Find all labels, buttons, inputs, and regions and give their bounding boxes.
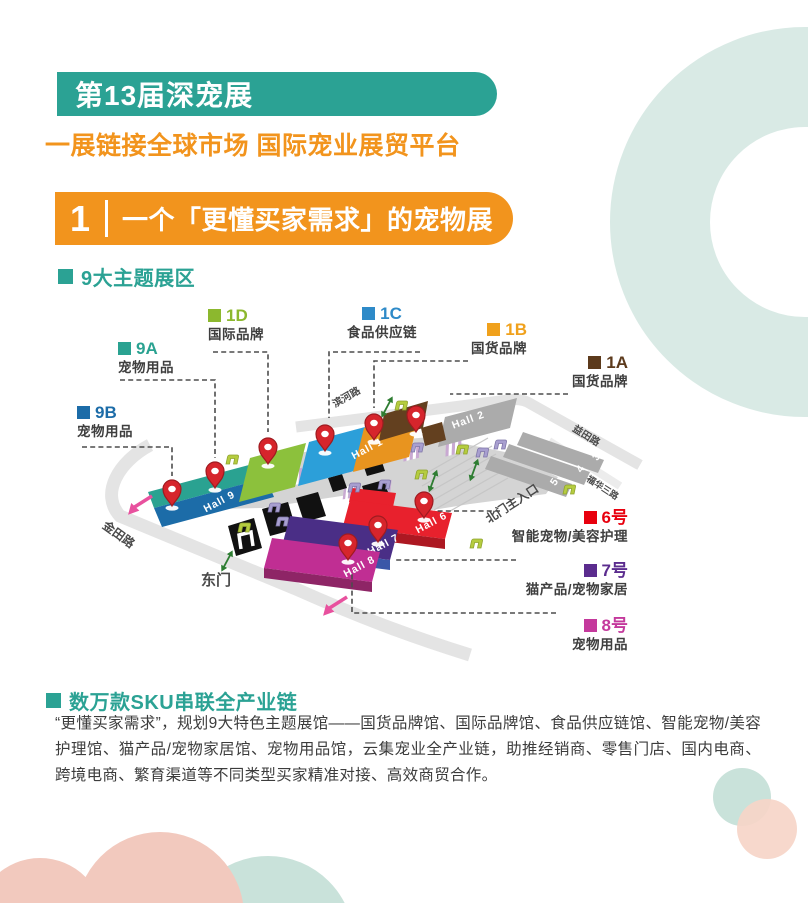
section1-title: 一个「更懂买家需求」的宠物展 [108,200,493,237]
zone-name: 宠物用品 [77,425,133,439]
poster-page: 3 4 5 Hall 2 Hall 9 Hall 1 Hall 6 [0,0,808,903]
road-label-dongmen: 东门 [201,571,231,589]
zone-label-1b: 1B 国货品牌 [471,321,527,356]
road-label-binhe: 滨河路 [330,383,363,410]
section1-number: 1 [55,198,105,240]
zone-square-icon [584,619,597,632]
zone-name: 宠物用品 [118,361,174,375]
zone-code: 1A [606,354,628,371]
zone-label-6: 6号 智能宠物/美容护理 [512,509,628,544]
zone-code: 1B [505,321,527,338]
zone-label-1c: 1C 食品供应链 [338,305,426,340]
zone-code: 8号 [602,617,628,634]
zone-code: 1D [226,307,248,324]
zone-square-icon [362,307,375,320]
zone-name: 宠物用品 [572,638,628,652]
decor-pink-circle-bottom-right [737,799,797,859]
zone-name: 国际品牌 [208,328,264,342]
page-title: 第13届深宠展 [75,74,253,114]
decor-pink-circle-bottom-left [76,832,244,903]
decor-ring [660,77,808,367]
zone-label-7: 7号 猫产品/宠物家居 [526,562,628,597]
zone-label-8: 8号 宠物用品 [572,617,628,652]
zone-label-1a: 1A 国货品牌 [572,354,628,389]
zone-name: 猫产品/宠物家居 [526,583,628,597]
decor-pink-circle-bottom-left-small [0,858,104,903]
zones-section-heading: 9大主题展区 [58,262,195,291]
zone-square-icon [588,356,601,369]
section1-banner: 1 一个「更懂买家需求」的宠物展 [55,192,513,245]
zone-code: 9A [136,340,158,357]
sku-body-paragraph: “更懂买家需求”，规划9大特色主题展馆——国货品牌馆、国际品牌馆、食品供应链馆、… [55,711,761,789]
zone-square-icon [77,406,90,419]
zone-label-9b: 9B 宠物用品 [77,404,133,439]
zone-name: 国货品牌 [572,375,628,389]
zone-code: 9B [95,404,117,421]
zone-name: 食品供应链 [338,326,426,340]
page-subtitle: 一展链接全球市场 国际宠业展贸平台 [45,126,460,162]
zone-code: 6号 [602,509,628,526]
zone-square-icon [208,309,221,322]
zone-square-icon [584,511,597,524]
zone-label-1d: 1D 国际品牌 [208,307,264,342]
main-title-banner: 第13届深宠展 [57,72,497,116]
zone-square-icon [584,564,597,577]
zone-code: 7号 [602,562,628,579]
heading-square-icon [46,693,61,708]
zone-square-icon [487,323,500,336]
zone-square-icon [118,342,131,355]
zones-heading-text: 9大主题展区 [81,262,195,291]
zone-code: 1C [380,305,402,322]
heading-square-icon [58,269,73,284]
zone-name: 国货品牌 [471,342,527,356]
zone-label-9a: 9A 宠物用品 [118,340,174,375]
zone-name: 智能宠物/美容护理 [512,530,628,544]
